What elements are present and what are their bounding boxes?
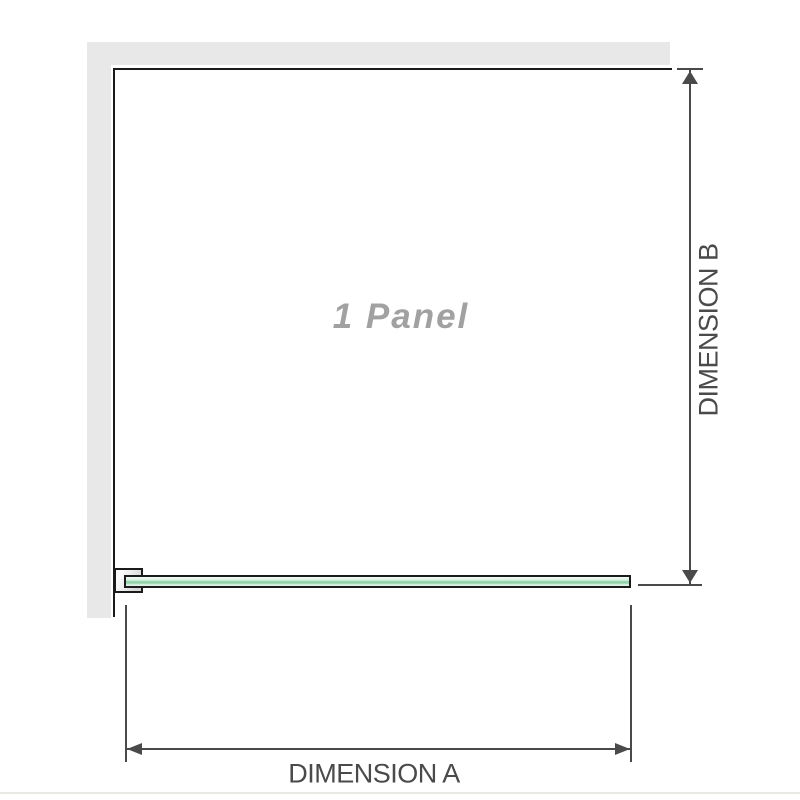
dimension-b-line [689, 70, 691, 584]
dimension-a-extension-left [125, 605, 127, 762]
wall-top-band [87, 42, 670, 65]
arrow-left-icon [127, 743, 142, 755]
dimension-a-label: DIMENSION A [288, 759, 460, 790]
dimension-b-label: DIMENSION B [694, 243, 725, 416]
dimension-b-top-tick [677, 68, 703, 70]
dimension-b-bottom-tick [638, 584, 702, 586]
panel-count-label: 1 Panel [333, 297, 470, 337]
enclosure-left-edge [113, 68, 115, 617]
glass-panel [124, 575, 631, 588]
arrow-down-icon [682, 570, 698, 583]
wall-left-band [87, 42, 111, 618]
panel-dimension-diagram: 1 Panel DIMENSION B DIMENSION A [0, 0, 800, 800]
arrow-right-icon [615, 743, 630, 755]
bottom-divider [0, 792, 800, 794]
enclosure-top-edge [113, 68, 672, 70]
arrow-up-icon [682, 71, 698, 84]
dimension-a-extension-right [630, 605, 632, 762]
dimension-a-line [127, 748, 630, 750]
